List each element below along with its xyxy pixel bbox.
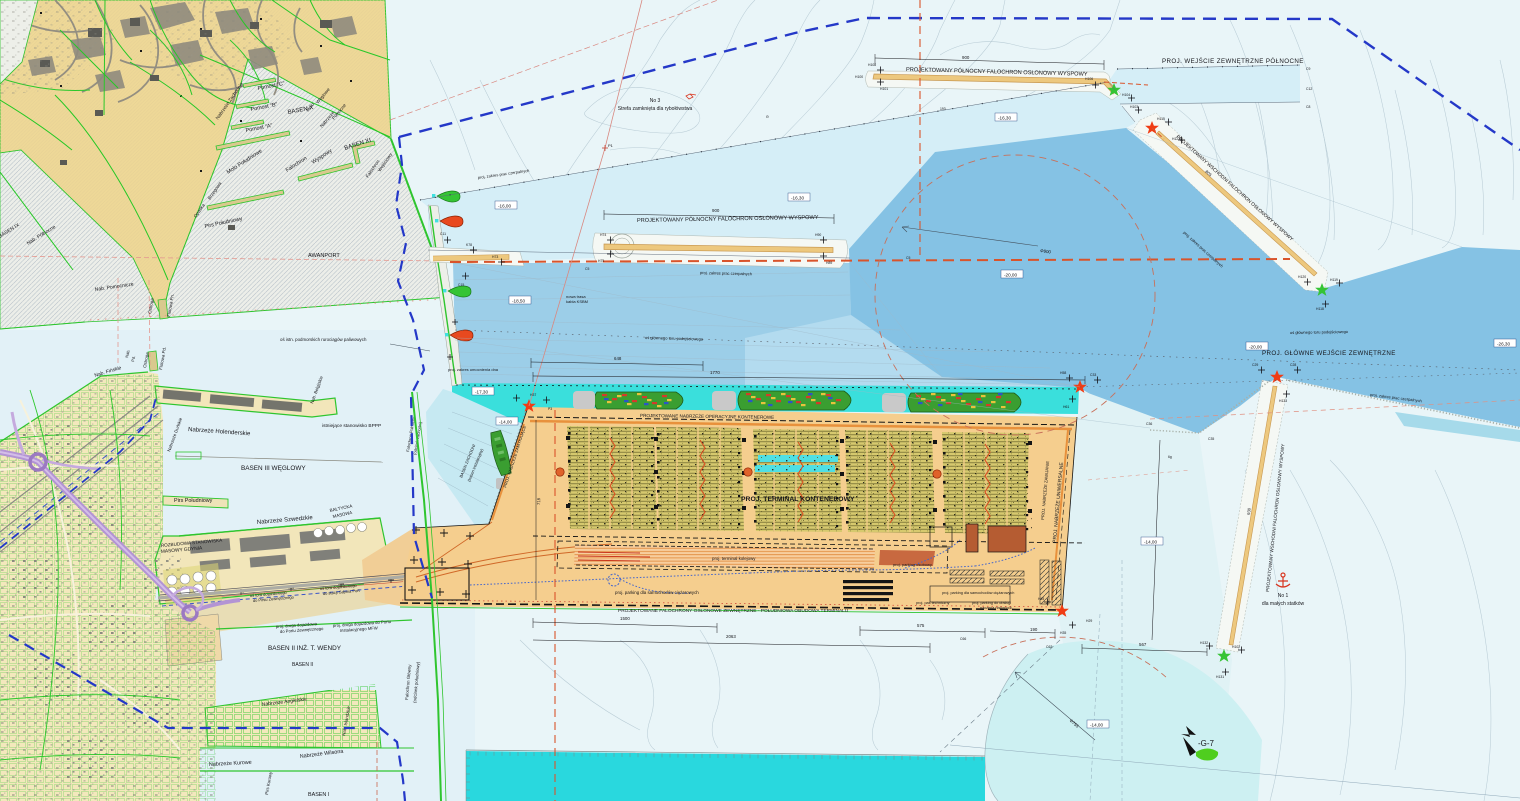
svg-text:H133: H133 bbox=[1279, 399, 1287, 403]
svg-text:H35: H35 bbox=[1060, 631, 1066, 635]
svg-text:190: 190 bbox=[1030, 627, 1038, 632]
svg-text:H75: H75 bbox=[598, 259, 604, 263]
svg-text:BASEN I: BASEN I bbox=[308, 792, 329, 798]
svg-text:H118: H118 bbox=[1316, 307, 1324, 311]
svg-text:H90: H90 bbox=[815, 233, 821, 237]
svg-text:oś istn. podmorskich rurociągó: oś istn. podmorskich rurociągów paliwowy… bbox=[280, 337, 367, 342]
svg-text:H100: H100 bbox=[855, 75, 863, 79]
svg-text:900: 900 bbox=[962, 55, 970, 60]
svg-text:H45: H45 bbox=[1038, 597, 1044, 601]
svg-text:-14,00: -14,00 bbox=[499, 420, 512, 425]
svg-text:Θ: Θ bbox=[766, 115, 769, 119]
svg-text:proj. terminal kolejowy: proj. terminal kolejowy bbox=[712, 556, 756, 561]
svg-text:-17,30: -17,30 bbox=[475, 390, 488, 395]
svg-text:C8: C8 bbox=[1306, 105, 1310, 109]
svg-text:proj. parking dla samochodów c: proj. parking dla samochodów ciężarowych bbox=[942, 591, 1014, 595]
svg-text:H104: H104 bbox=[1122, 93, 1130, 97]
svg-text:H115: H115 bbox=[1157, 117, 1165, 121]
svg-text:istniejące stanowisko BPPP: istniejące stanowisko BPPP bbox=[322, 423, 381, 429]
svg-text:proj. zakres umocnienia dna: proj. zakres umocnienia dna bbox=[448, 367, 499, 372]
svg-text:-18,50: -18,50 bbox=[512, 299, 525, 304]
svg-text:PROJ. TERMINAL KONTENEROWY: PROJ. TERMINAL KONTENEROWY bbox=[741, 496, 855, 503]
svg-text:proj. parking osobowy: proj. parking osobowy bbox=[893, 562, 932, 567]
svg-text:H58: H58 bbox=[1060, 371, 1066, 375]
svg-text:1770: 1770 bbox=[710, 370, 720, 375]
svg-text:P1: P1 bbox=[608, 143, 614, 148]
svg-text:proj. parking dla samochodów c: proj. parking dla samochodów ciężarowych bbox=[615, 590, 699, 595]
svg-text:718: 718 bbox=[536, 497, 541, 505]
svg-text:H89: H89 bbox=[826, 261, 832, 265]
svg-text:567: 567 bbox=[1139, 642, 1147, 647]
svg-text:kabla KSBM: kabla KSBM bbox=[566, 299, 588, 304]
svg-text:PROJEKTOWANE FALOCHRONY OSŁONO: PROJEKTOWANE FALOCHRONY OSŁONOWE ZEWNĘTR… bbox=[618, 608, 849, 614]
svg-text:naczepa niskopodł.: naczepa niskopodł. bbox=[980, 606, 1013, 610]
svg-text:900: 900 bbox=[712, 208, 720, 213]
svg-text:H120: H120 bbox=[1298, 275, 1306, 279]
svg-text:No 1: No 1 bbox=[1278, 593, 1289, 599]
svg-text:Strefa zamknięta dla rybołówst: Strefa zamknięta dla rybołówstwa bbox=[618, 106, 693, 112]
svg-text:PROJ. WEJŚCIE ZEWNĘTRZNE PÓŁNO: PROJ. WEJŚCIE ZEWNĘTRZNE PÓŁNOCNE bbox=[1162, 57, 1304, 65]
svg-text:575: 575 bbox=[917, 623, 925, 628]
svg-text:2063: 2063 bbox=[726, 634, 736, 639]
svg-text:H29: H29 bbox=[1086, 619, 1092, 623]
svg-text:H102: H102 bbox=[1232, 645, 1240, 649]
svg-text:C15: C15 bbox=[458, 283, 464, 287]
svg-text:930: 930 bbox=[1246, 507, 1252, 515]
svg-text:AWANPORT: AWANPORT bbox=[308, 253, 340, 259]
svg-text:C62: C62 bbox=[1046, 645, 1052, 649]
svg-text:C5: C5 bbox=[585, 267, 589, 271]
svg-text:BASEN III WĘGLOWY: BASEN III WĘGLOWY bbox=[241, 465, 306, 472]
svg-text:C5: C5 bbox=[906, 256, 910, 260]
svg-text:-26,30: -26,30 bbox=[1497, 342, 1510, 347]
svg-text:-14,00: -14,00 bbox=[1090, 723, 1103, 728]
svg-text:K78: K78 bbox=[466, 243, 472, 247]
svg-text:proj. parking do obsługi: proj. parking do obsługi bbox=[972, 601, 1011, 605]
svg-text:proj. pas techniczny: proj. pas techniczny bbox=[916, 601, 950, 605]
svg-text:H108: H108 bbox=[868, 63, 876, 67]
svg-text:P3: P3 bbox=[548, 407, 552, 411]
svg-text:-14,00: -14,00 bbox=[1144, 540, 1157, 545]
svg-text:C9: C9 bbox=[1306, 67, 1310, 71]
svg-text:H103: H103 bbox=[1130, 105, 1138, 109]
svg-text:H73: H73 bbox=[492, 255, 498, 259]
svg-text:C29: C29 bbox=[1252, 363, 1258, 367]
svg-text:C35: C35 bbox=[1208, 437, 1214, 441]
svg-text:H121: H121 bbox=[1172, 137, 1180, 141]
svg-text:1500: 1500 bbox=[620, 616, 630, 621]
svg-text:648: 648 bbox=[614, 356, 622, 361]
svg-text:dla małych statków: dla małych statków bbox=[1262, 601, 1305, 607]
svg-text:-16,00: -16,00 bbox=[498, 204, 511, 209]
svg-text:-20,00: -20,00 bbox=[1249, 345, 1262, 350]
svg-text:H101: H101 bbox=[880, 87, 888, 91]
svg-text:No 3: No 3 bbox=[650, 98, 661, 104]
svg-text:C28: C28 bbox=[1290, 363, 1296, 367]
svg-text:BASEN II: BASEN II bbox=[292, 662, 313, 668]
svg-text:H106: H106 bbox=[1085, 77, 1093, 81]
svg-text:-16,30: -16,30 bbox=[791, 196, 804, 201]
svg-text:PROJ. GŁÓWNE WEJŚCIE ZEWNĘTRZN: PROJ. GŁÓWNE WEJŚCIE ZEWNĘTRZNE bbox=[1262, 349, 1396, 357]
svg-text:C11: C11 bbox=[440, 232, 446, 236]
svg-text:H131: H131 bbox=[1216, 675, 1224, 679]
svg-text:-20,00: -20,00 bbox=[1004, 273, 1017, 278]
svg-text:193: 193 bbox=[940, 107, 946, 111]
svg-text:H74: H74 bbox=[600, 233, 606, 237]
svg-text:-G-7: -G-7 bbox=[1198, 739, 1215, 748]
svg-text:-16,30: -16,30 bbox=[998, 116, 1011, 121]
svg-text:C66: C66 bbox=[960, 637, 966, 641]
svg-text:H132: H132 bbox=[1200, 641, 1208, 645]
svg-text:6g: 6g bbox=[1168, 455, 1172, 459]
svg-text:C36: C36 bbox=[1146, 422, 1152, 426]
svg-text:H61: H61 bbox=[1063, 405, 1069, 409]
svg-text:C33: C33 bbox=[1090, 373, 1096, 377]
svg-text:oś głównego toru podejściowego: oś głównego toru podejściowego bbox=[1290, 329, 1349, 335]
svg-text:BASEN II INŻ. T. WENDY: BASEN II INŻ. T. WENDY bbox=[268, 643, 342, 652]
svg-text:Pirs Południowy: Pirs Południowy bbox=[174, 498, 213, 504]
svg-text:H37: H37 bbox=[530, 393, 536, 397]
svg-text:C12: C12 bbox=[1306, 87, 1312, 91]
svg-text:H119: H119 bbox=[1330, 278, 1338, 282]
